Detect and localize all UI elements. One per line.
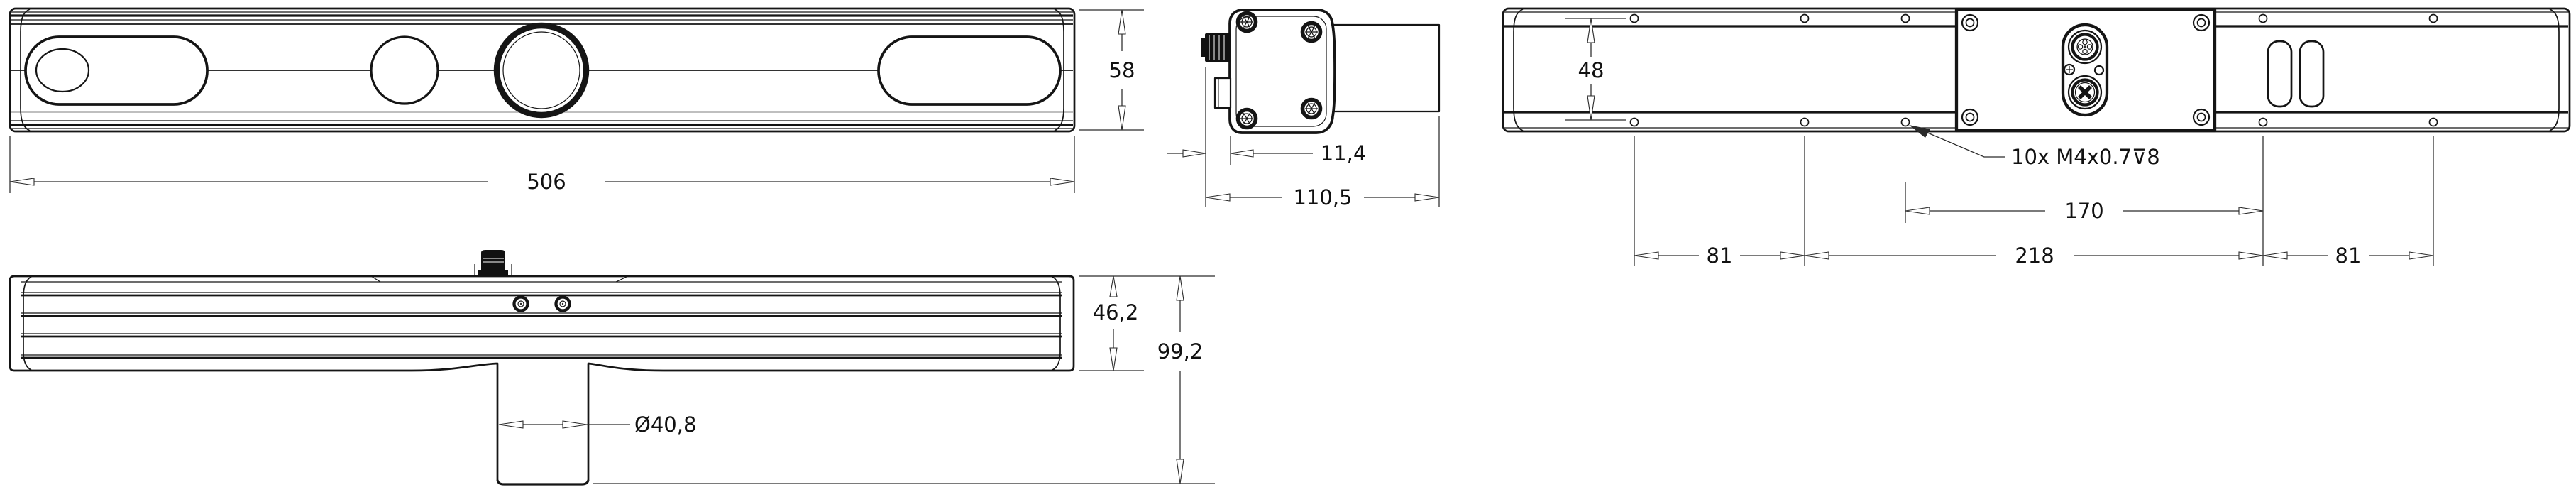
dim-label-front-height: 58 xyxy=(1109,58,1135,82)
leader-line xyxy=(1926,132,2005,157)
dim-label-side-offset: 11,4 xyxy=(1321,141,1367,165)
dim-label-inner-span: 170 xyxy=(2064,199,2103,223)
dim-pole-diameter: Ø40,8 xyxy=(499,413,696,437)
mounting-hole xyxy=(1801,15,1809,23)
cover-screw-icon xyxy=(556,297,570,311)
vent-slot xyxy=(2268,41,2291,106)
camera-lens-large-ring-icon xyxy=(497,26,586,115)
top-outline-right xyxy=(664,276,1074,371)
dim-label-total-height: 99,2 xyxy=(1157,339,1204,364)
technical-drawing-canvas: 506 58 xyxy=(0,0,2576,497)
top-left-endcap xyxy=(23,277,31,370)
top-view xyxy=(10,250,1074,484)
mounting-hole xyxy=(1801,119,1809,126)
dim-front-width: 506 xyxy=(10,136,1074,194)
mounting-hole xyxy=(1631,15,1639,23)
thread-note-label: 10x M4x0.7⊽8 xyxy=(2011,145,2160,169)
dim-rear-center-span: 218 xyxy=(1805,244,2263,268)
mounting-pole xyxy=(412,364,664,484)
receiver-window-right xyxy=(879,37,1060,104)
vent-slot xyxy=(2300,41,2323,106)
dim-label-side-depth: 110,5 xyxy=(1293,185,1352,209)
mounting-hole xyxy=(1631,119,1639,126)
side-mount-block xyxy=(1215,78,1231,108)
dim-label-rear-rows: 48 xyxy=(1578,58,1605,82)
m12-connector-female-icon xyxy=(2069,31,2101,63)
cover-screw-icon xyxy=(514,297,528,311)
mounting-hole xyxy=(2259,15,2267,23)
m12-connector-male-icon xyxy=(2069,76,2101,109)
m8-connector-side-icon xyxy=(1201,33,1231,62)
dim-rear-inner-span: 170 xyxy=(1905,199,2263,223)
panel-small-screw-icon xyxy=(2064,65,2074,75)
side-body xyxy=(1331,25,1439,111)
mounting-hole xyxy=(2259,119,2267,126)
emitter-lens-icon xyxy=(36,49,89,92)
dim-label-center-span: 218 xyxy=(2015,244,2054,268)
dim-label-left-span: 81 xyxy=(1707,244,1733,268)
mounting-hole xyxy=(2430,15,2438,23)
dim-label-right-span: 81 xyxy=(2335,244,2362,268)
side-view xyxy=(1201,10,1439,133)
top-right-endcap xyxy=(1052,277,1060,370)
dim-label-front-width: 506 xyxy=(527,170,566,194)
top-groove-lines xyxy=(21,276,1062,358)
camera-lens-small-icon xyxy=(371,37,438,104)
dim-rear-left-span: 81 xyxy=(1634,244,1805,268)
dim-rear-right-span: 81 xyxy=(2263,244,2433,268)
mounting-hole xyxy=(1902,15,1910,23)
dim-label-body-height: 46,2 xyxy=(1093,300,1139,324)
dim-label-pole-diameter: Ø40,8 xyxy=(634,413,696,437)
top-outline-left xyxy=(10,276,412,371)
m8-connector-top-icon xyxy=(475,250,512,276)
mounting-hole xyxy=(2430,119,2438,126)
dim-front-height: 58 xyxy=(1079,10,1144,130)
mounting-hole xyxy=(1902,119,1910,126)
rear-view xyxy=(1503,9,2570,131)
front-view xyxy=(10,9,1074,131)
drawing-svg: 506 58 xyxy=(0,0,2576,497)
